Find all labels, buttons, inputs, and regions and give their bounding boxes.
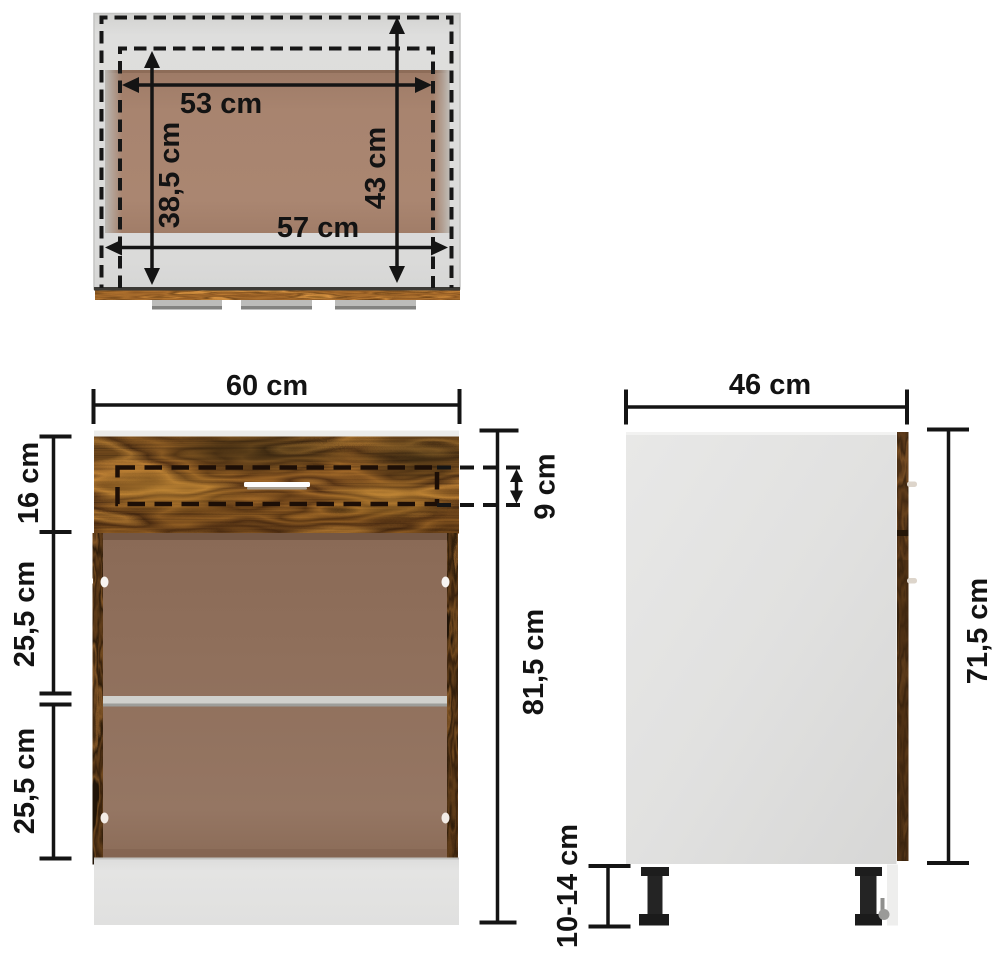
svg-text:9 cm: 9 cm bbox=[530, 453, 562, 519]
svg-text:60 cm: 60 cm bbox=[226, 370, 308, 402]
svg-text:57 cm: 57 cm bbox=[277, 212, 359, 244]
svg-text:10-14 cm: 10-14 cm bbox=[552, 824, 584, 948]
svg-text:46 cm: 46 cm bbox=[729, 369, 811, 401]
svg-text:43 cm: 43 cm bbox=[360, 127, 392, 209]
svg-text:71,5 cm: 71,5 cm bbox=[962, 578, 994, 684]
svg-text:25,5 cm: 25,5 cm bbox=[9, 561, 41, 667]
svg-text:16 cm: 16 cm bbox=[13, 442, 45, 524]
svg-text:81,5 cm: 81,5 cm bbox=[518, 609, 550, 715]
svg-text:53 cm: 53 cm bbox=[180, 88, 262, 120]
svg-text:25,5 cm: 25,5 cm bbox=[9, 728, 41, 834]
svg-text:38,5 cm: 38,5 cm bbox=[154, 122, 186, 228]
